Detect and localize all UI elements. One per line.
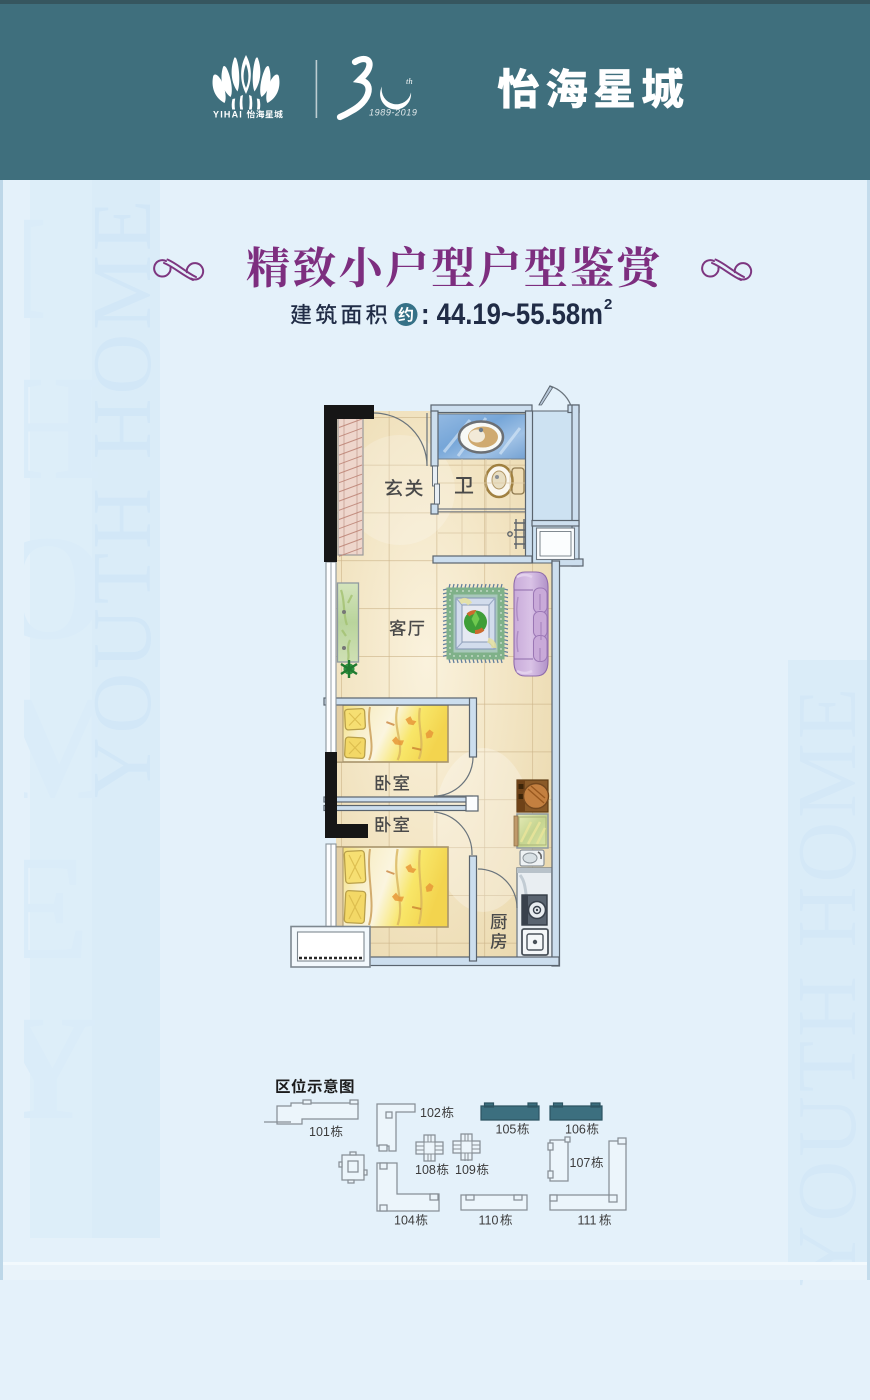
svg-text:: 44.19~55.58m: : 44.19~55.58m (421, 298, 603, 331)
svg-text:101: 101 (309, 1125, 330, 1139)
svg-text:105: 105 (496, 1123, 517, 1137)
svg-text:106: 106 (565, 1123, 586, 1137)
svg-text:1989-2019: 1989-2019 (369, 108, 417, 118)
svg-text:108: 108 (415, 1163, 436, 1177)
svg-text:111: 111 (578, 1214, 597, 1228)
svg-text:2: 2 (604, 296, 612, 313)
svg-text:109: 109 (455, 1163, 476, 1177)
svg-text:110: 110 (479, 1214, 499, 1228)
svg-text:th: th (406, 76, 413, 86)
svg-text:107: 107 (570, 1156, 591, 1170)
svg-text:102: 102 (420, 1106, 441, 1120)
svg-text:YIHAI: YIHAI (213, 110, 243, 120)
svg-text:104: 104 (394, 1214, 415, 1228)
